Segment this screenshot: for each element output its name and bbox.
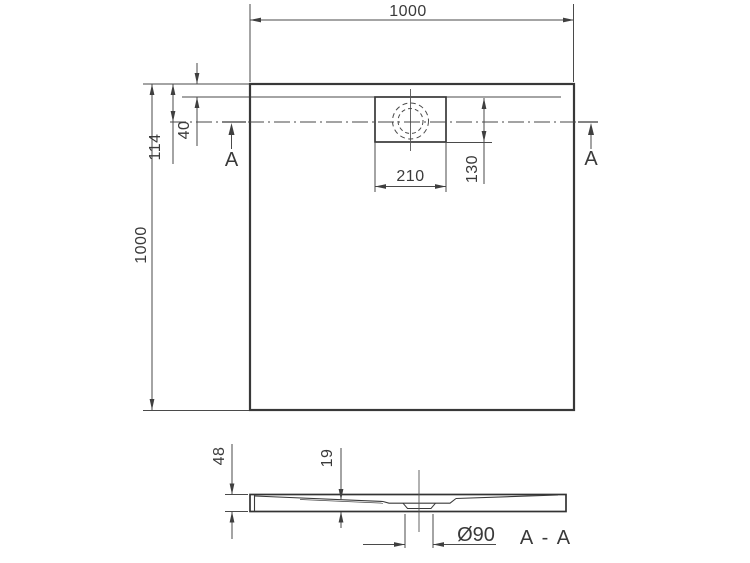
section-marker-left-label: A xyxy=(225,149,239,171)
arrowhead-right xyxy=(435,184,446,189)
arrowhead-right xyxy=(563,18,574,23)
dim-48-label: 48 xyxy=(211,447,228,466)
arrowhead-up xyxy=(339,512,344,523)
section-view-title: A - A xyxy=(520,527,572,549)
top-view xyxy=(170,84,598,410)
dim-130-label: 130 xyxy=(464,155,481,183)
section-arrow-right xyxy=(588,123,594,135)
section-arrow-left xyxy=(229,123,235,135)
dim-130: 130 xyxy=(446,98,492,184)
dim-diameter-label: Ø90 xyxy=(457,524,495,546)
dim-19: 19 xyxy=(319,448,343,528)
dim-left-height-label: 1000 xyxy=(133,226,150,264)
section-marker-right: A xyxy=(584,123,598,170)
arrowhead-down xyxy=(230,484,235,495)
dim-114: 114 xyxy=(147,84,175,164)
arrowhead-up xyxy=(171,84,176,95)
arrowhead-up xyxy=(482,98,487,109)
arrowhead-left xyxy=(250,18,261,23)
dim-40-label: 40 xyxy=(176,121,193,140)
arrowhead-up xyxy=(230,512,235,523)
dim-48: 48 xyxy=(211,444,248,539)
dim-diameter-90: Ø90 xyxy=(363,514,496,548)
arrowhead-up xyxy=(195,97,200,108)
section-view xyxy=(250,470,566,532)
arrowhead-down xyxy=(195,73,200,84)
dim-210-label: 210 xyxy=(396,168,424,185)
section-marker-right-label: A xyxy=(584,148,598,170)
arrowhead-down xyxy=(171,111,176,122)
arrowhead-right xyxy=(394,542,405,547)
dim-top-width-label: 1000 xyxy=(389,3,427,20)
arrowhead-down xyxy=(482,131,487,142)
dim-top-width: 1000 xyxy=(250,3,574,82)
arrowhead-down xyxy=(150,399,155,410)
section-marker-left: A xyxy=(225,123,239,171)
arrowhead-left xyxy=(375,184,386,189)
arrowhead-left xyxy=(433,542,444,547)
drawing-canvas: 1000 1000 114 40 130 210 xyxy=(0,0,750,563)
technical-drawing: 1000 1000 114 40 130 210 xyxy=(0,0,750,563)
dim-19-label: 19 xyxy=(319,449,336,468)
dim-40: 40 xyxy=(176,63,199,146)
dim-114-label: 114 xyxy=(147,133,164,160)
arrowhead-up xyxy=(150,84,155,95)
